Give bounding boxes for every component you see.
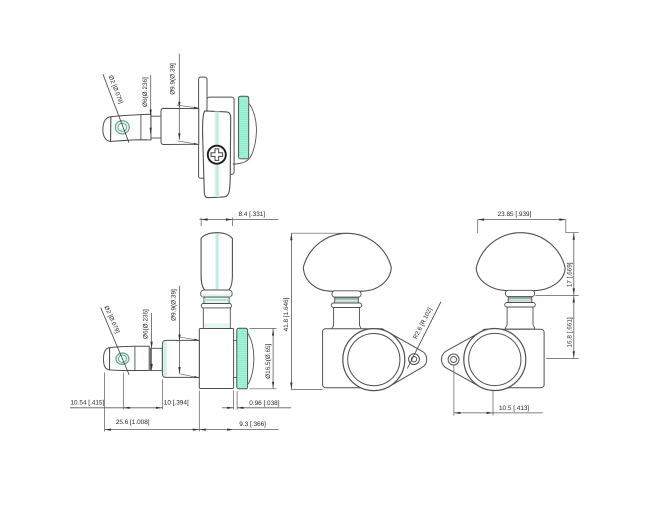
svg-text:10 [.394]: 10 [.394] — [164, 400, 189, 407]
svg-text:Ø6(Ø.236]: Ø6(Ø.236] — [142, 77, 149, 107]
svg-text:10.5 [.413]: 10.5 [.413] — [499, 405, 529, 412]
svg-text:25.6 [1.008]: 25.6 [1.008] — [116, 419, 150, 426]
svg-text:23.85 [.939]: 23.85 [.939] — [498, 211, 532, 218]
svg-text:R2.6 [R.102]: R2.6 [R.102] — [412, 306, 434, 340]
svg-text:Ø6(Ø.236]: Ø6(Ø.236] — [143, 309, 150, 339]
svg-text:Ø2 [Ø.079]: Ø2 [Ø.079] — [107, 74, 125, 105]
svg-text:9.3 [.366]: 9.3 [.366] — [239, 421, 266, 428]
svg-text:Ø9.9(Ø.39]: Ø9.9(Ø.39] — [170, 63, 177, 95]
svg-text:41.8 [1.646]: 41.8 [1.646] — [283, 297, 290, 331]
svg-text:Ø2 [Ø.079]: Ø2 [Ø.079] — [102, 305, 120, 335]
svg-text:16.8 [.661]: 16.8 [.661] — [566, 317, 573, 347]
svg-text:8.4 [.331]: 8.4 [.331] — [238, 211, 265, 218]
svg-text:17 [.669]: 17 [.669] — [566, 262, 573, 287]
svg-text:Ø9.9(Ø.39]: Ø9.9(Ø.39] — [171, 289, 178, 321]
svg-text:Ø16.5(Ø.65]: Ø16.5(Ø.65] — [265, 343, 272, 378]
svg-text:10.54 [.415]: 10.54 [.415] — [71, 400, 105, 407]
svg-text:0.96 [.038]: 0.96 [.038] — [249, 400, 279, 407]
